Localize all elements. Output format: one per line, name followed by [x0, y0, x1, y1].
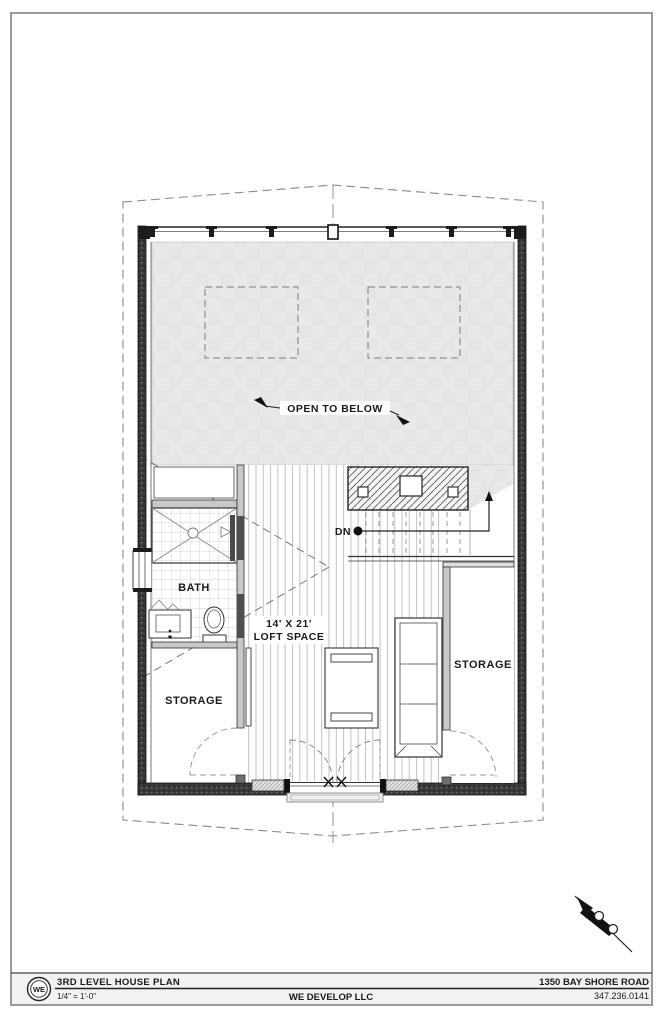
sill-block-left: [252, 780, 284, 791]
north-arrow-icon: [575, 896, 632, 952]
loft-dimensions-label: 14' X 21': [266, 618, 312, 630]
wall-right: [518, 226, 526, 795]
coffee-table: [325, 648, 378, 728]
logo-text: WE: [33, 985, 45, 994]
phone-number: 347.236.0141: [594, 991, 649, 1001]
interior-wall-left: [236, 465, 245, 783]
shower-glass-panel: [230, 515, 235, 561]
top-beam-center-post: [328, 225, 338, 239]
corner-post-right: [514, 226, 526, 239]
drawing-sheet: OPEN TO BELOW BATH: [0, 0, 663, 1024]
window-left-wall: [133, 548, 152, 592]
storage-right-top-wall: [443, 562, 514, 567]
storage-left-label: STORAGE: [165, 695, 223, 707]
sofa: [395, 618, 442, 757]
toilet: [203, 607, 226, 644]
door-threshold: [287, 793, 383, 802]
sheet-scale: 1/4" = 1'-0": [57, 992, 96, 1001]
loft-label-group: 14' X 21' LOFT SPACE: [253, 616, 325, 644]
down-marker-dot: [354, 527, 363, 536]
title-block: WE 3RD LEVEL HOUSE PLAN 1/4" = 1'-0" WE …: [11, 973, 652, 1004]
down-label: DN: [335, 526, 351, 538]
open-to-below-label: OPEN TO BELOW: [287, 403, 383, 415]
loft-name-label: LOFT SPACE: [254, 631, 325, 643]
storage-right-floor: [449, 567, 514, 783]
bath-label: BATH: [178, 582, 210, 594]
storage-left-door-panel: [246, 648, 251, 726]
stair-beam: [348, 467, 468, 510]
corner-post-left: [139, 226, 150, 239]
sill-block-right: [386, 780, 418, 791]
storage-right-label: STORAGE: [454, 659, 512, 671]
storage-left-door-swing: [190, 728, 237, 775]
floor-plan-canvas: OPEN TO BELOW BATH: [0, 0, 663, 1024]
wall-left: [138, 226, 146, 795]
company-name: WE DEVELOP LLC: [289, 992, 373, 1003]
open-to-below-wedge: [468, 465, 513, 510]
company-logo: WE: [28, 978, 51, 1001]
closet: [154, 467, 234, 498]
shower-drain-icon: [188, 528, 198, 538]
bath-storage-divider-wall: [152, 642, 237, 648]
open-to-below-area: [152, 242, 513, 465]
project-address: 1350 BAY SHORE ROAD: [539, 977, 649, 988]
closet-wall: [152, 500, 237, 508]
sheet-title: 3RD LEVEL HOUSE PLAN: [57, 977, 180, 988]
